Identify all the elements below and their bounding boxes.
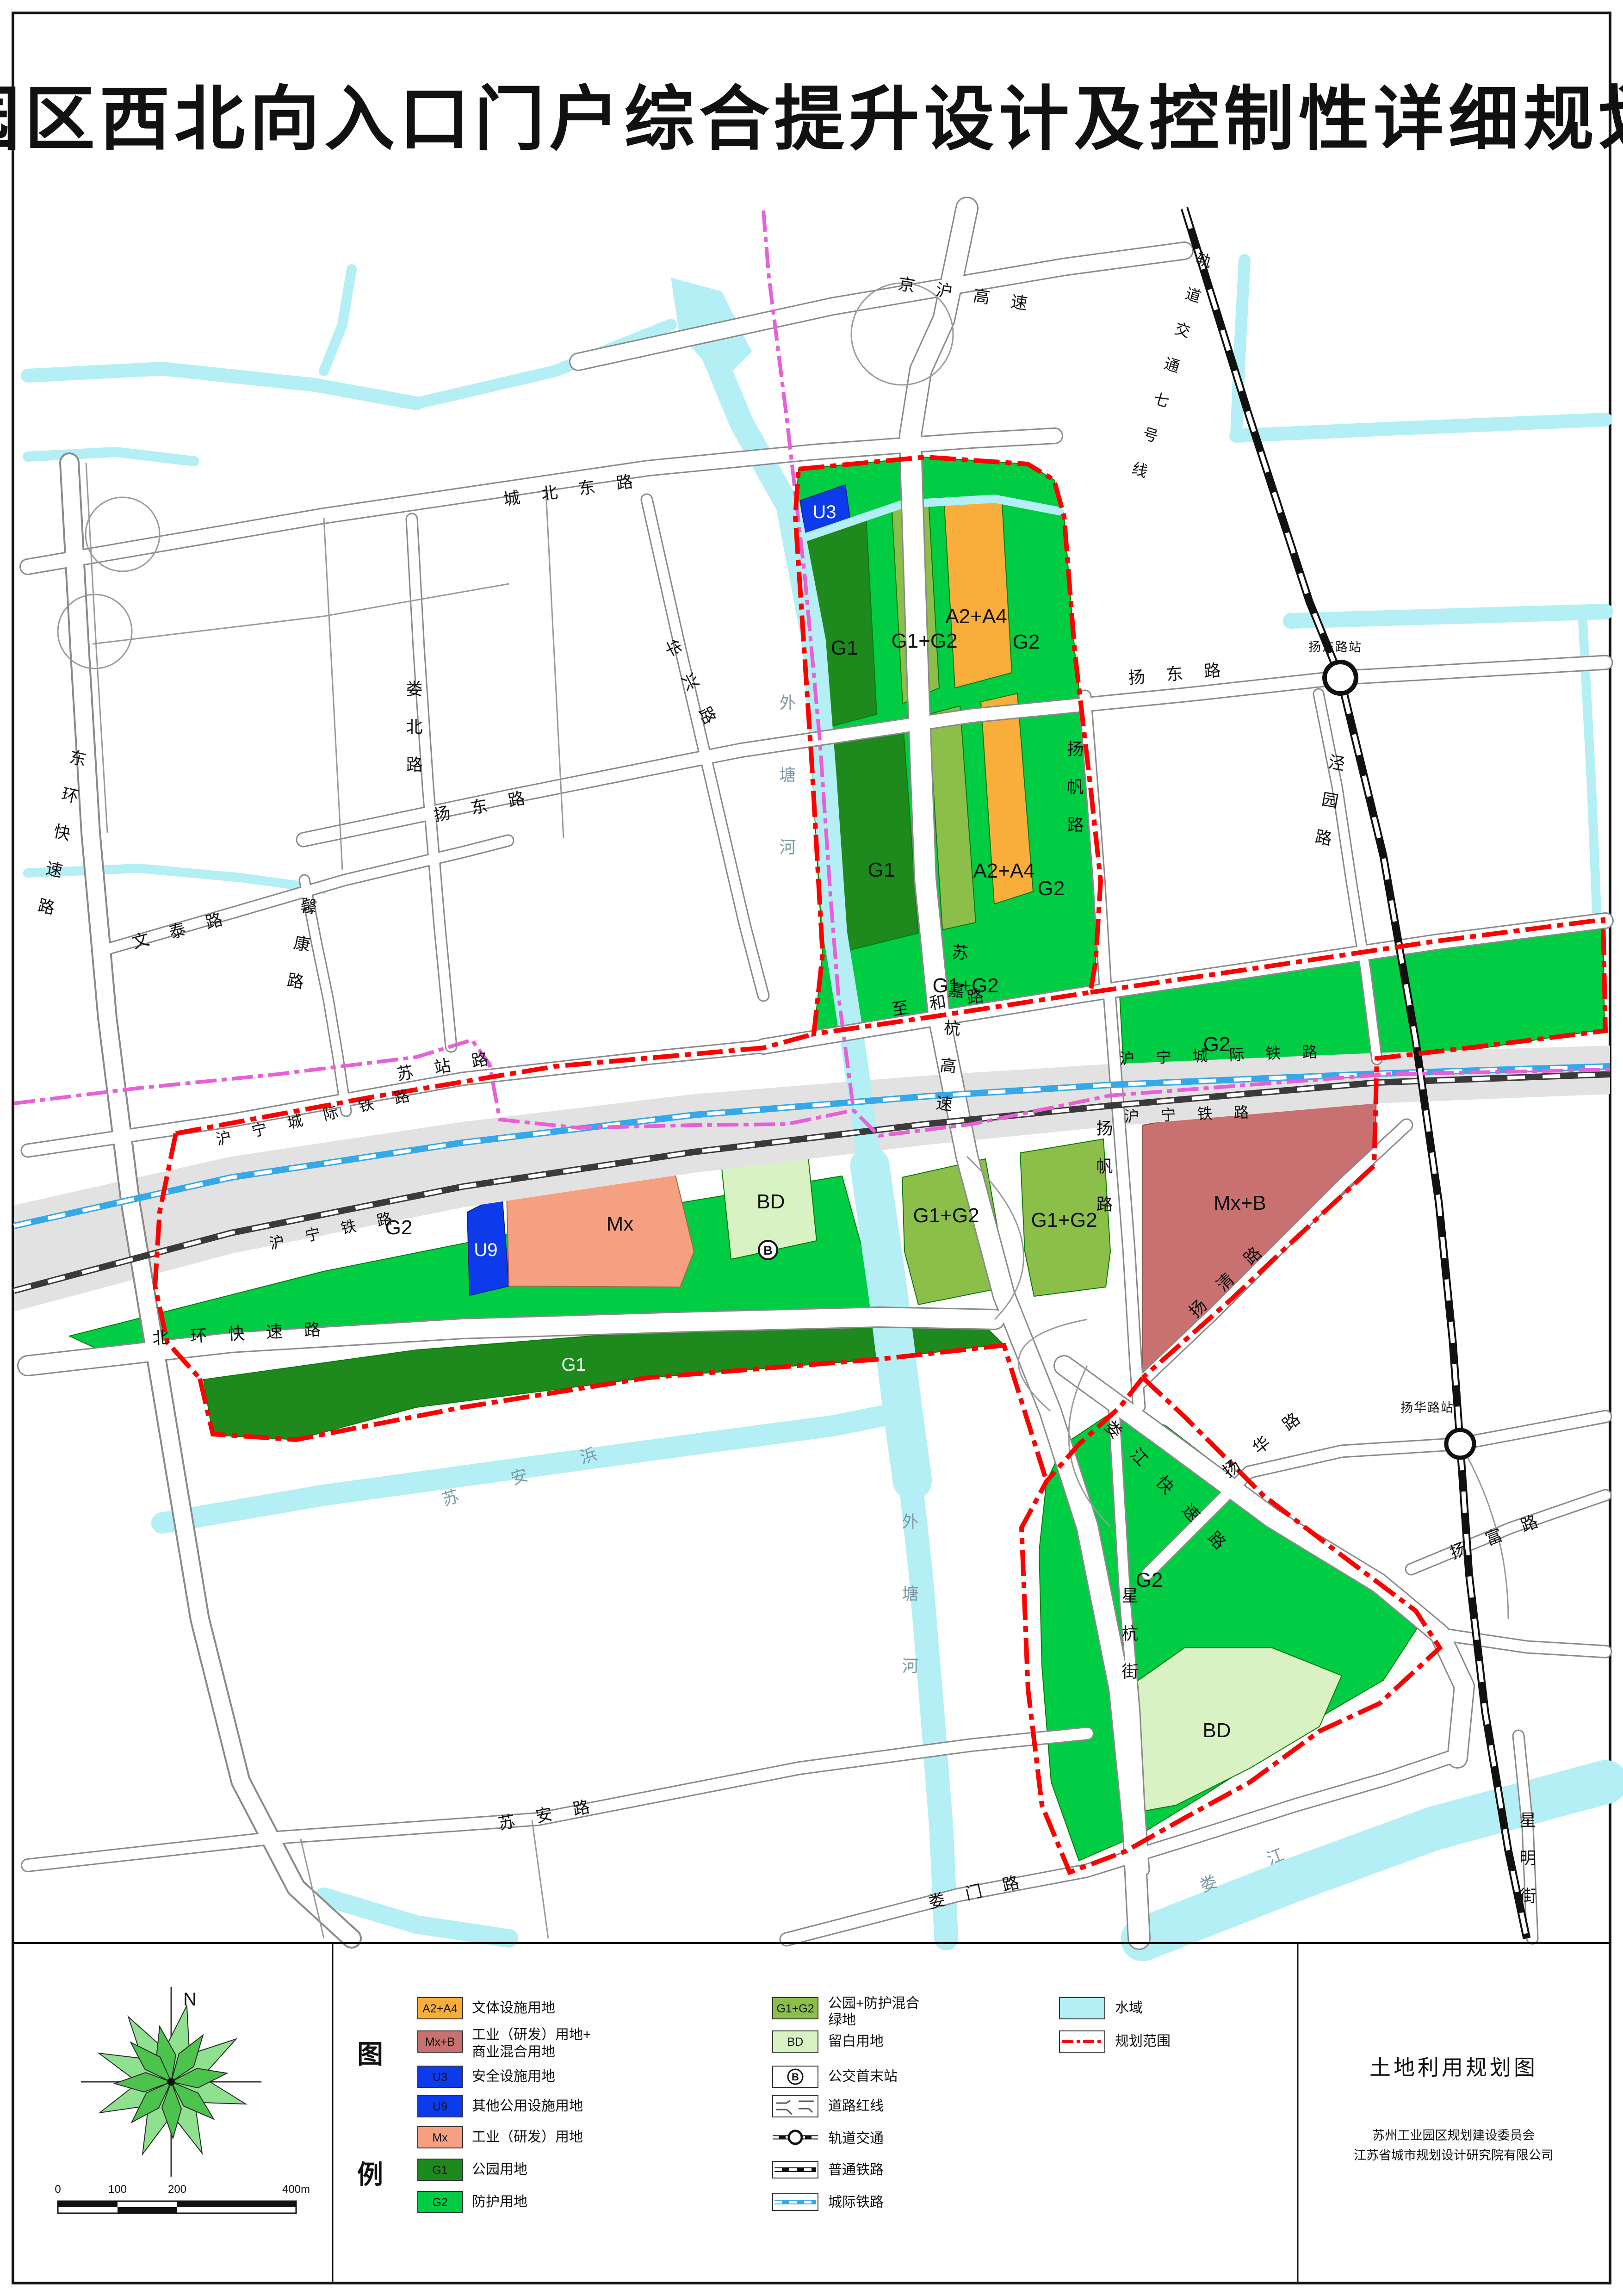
label-parcel-mx: Mx	[607, 1213, 634, 1235]
label-bus-b: B	[763, 1244, 773, 1257]
label-parcel-g1-u: G1	[831, 637, 858, 659]
legend-label-bus: 公交首末站	[828, 2069, 898, 2084]
label-road-yangfan-n: 扬帆路	[1065, 740, 1084, 854]
label-parcel-g1-l: G1	[868, 859, 895, 881]
legend-label-u9: 其他公用设施用地	[472, 2098, 583, 2114]
label-parcel-g2-l: G2	[1038, 877, 1065, 900]
legend-label-roadline: 道路红线	[828, 2098, 884, 2114]
legend-metro-icon	[789, 2131, 802, 2144]
legend-code-g1g2: G1+G2	[776, 2002, 814, 2015]
label-parcel-g1g2-u: G1+G2	[891, 630, 957, 652]
label-parcel-bd-lobe: BD	[1202, 1719, 1231, 1742]
legend-label-g2: 防护用地	[472, 2194, 527, 2209]
sheet-name: 土地利用规划图	[1369, 2055, 1538, 2079]
station-yanghua-circle	[1446, 1430, 1474, 1458]
scale-100: 100	[108, 2183, 127, 2196]
label-road-loubei: 娄北路	[404, 680, 423, 794]
legend-code-bd: BD	[787, 2036, 804, 2048]
label-parcel-g2-u: G2	[1013, 631, 1040, 653]
legend-label-u3: 安全设施用地	[472, 2069, 555, 2084]
parcel-a2a4-upper	[944, 495, 1012, 688]
label-parcel-g2-wedge: G2	[385, 1216, 413, 1239]
label-parcel-g1-strip: G1	[561, 1355, 586, 1375]
legend-label-rail: 普通铁路	[828, 2162, 884, 2178]
legend-bus-icon: B	[792, 2071, 799, 2083]
label-parcel-u3: U3	[812, 502, 836, 522]
legend-code-mx: Mx	[432, 2131, 448, 2144]
label-parcel-g2-strip-e: G2	[1203, 1033, 1231, 1056]
legend-label-mxb-2: 商业混合用地	[472, 2044, 555, 2060]
legend-label-g1: 公园用地	[472, 2162, 527, 2177]
label-parcel-g1g2-me: G1+G2	[1031, 1209, 1097, 1232]
legend-code-u9: U9	[433, 2100, 447, 2113]
label-station-yangdong: 扬东路站	[1308, 640, 1362, 654]
legend-header-1: 图	[357, 2040, 383, 2069]
scale-200: 200	[168, 2183, 186, 2196]
planning-map-sheet: 园区西北向入口门户综合提升设计及控制性详细规划	[0, 0, 1623, 2296]
legend-label-water: 水域	[1115, 2000, 1143, 2016]
legend-label-mx: 工业（研发）用地	[472, 2129, 583, 2145]
label-river-waitanghe-n: 外塘河	[777, 694, 796, 910]
legend-code-a2a4: A2+A4	[422, 2002, 458, 2015]
legend-code-g2: G2	[432, 2196, 447, 2209]
station-yangdong-circle	[1325, 662, 1356, 693]
legend-label-intercity: 城际铁路	[828, 2195, 884, 2210]
org-line-2: 江苏省城市规划设计研究院有限公司	[1354, 2148, 1554, 2162]
label-parcel-bd-mid: BD	[756, 1190, 785, 1213]
org-line-1: 苏州工业园区规划建设委员会	[1373, 2129, 1535, 2142]
label-parcel-g1g2-l: G1+G2	[932, 974, 998, 997]
legend-label-g1g2-2: 绿地	[828, 2012, 856, 2028]
label-road-xingming: 星明街	[1518, 1811, 1536, 1925]
stream-topright-3	[1291, 612, 1605, 621]
label-parcel-g2-lobe: G2	[1136, 1569, 1163, 1591]
map-canvas: 园区西北向入口门户综合提升设计及控制性详细规划	[0, 0, 1623, 2296]
label-parcel-a2a4-u: A2+A4	[945, 605, 1007, 628]
legend-code-u3: U3	[433, 2071, 447, 2084]
legend-code-g1: G1	[432, 2164, 447, 2177]
label-road-xinghang: 星杭街	[1120, 1587, 1139, 1701]
page-title: 园区西北向入口门户综合提升设计及控制性详细规划	[0, 80, 1623, 159]
label-parcel-a2a4-l: A2+A4	[973, 860, 1035, 882]
label-river-waitanghe-s: 外塘河	[900, 1513, 919, 1729]
legend-header-2: 例	[357, 2160, 383, 2189]
label-parcel-u9: U9	[474, 1240, 497, 1260]
label-parcel-g1g2-mw: G1+G2	[913, 1204, 979, 1227]
legend-label-bd: 留白用地	[828, 2034, 884, 2049]
legend-label-g1g2-1: 公园+防护混合	[828, 1996, 920, 2011]
label-parcel-mxb: Mx+B	[1214, 1192, 1266, 1214]
legend-label-a2a4: 文体设施用地	[472, 2000, 555, 2016]
scale-0: 0	[55, 2183, 61, 2196]
legend-label-boundary: 规划范围	[1115, 2034, 1171, 2049]
legend-label-metro: 轨道交通	[828, 2131, 884, 2146]
label-station-yanghua: 扬华路站	[1400, 1401, 1454, 1415]
legend-label-mxb-1: 工业（研发）用地+	[472, 2027, 591, 2042]
scale-400: 400m	[282, 2183, 310, 2196]
compass-north-label: N	[183, 1989, 197, 2010]
legend-code-mxb: Mx+B	[425, 2036, 455, 2048]
